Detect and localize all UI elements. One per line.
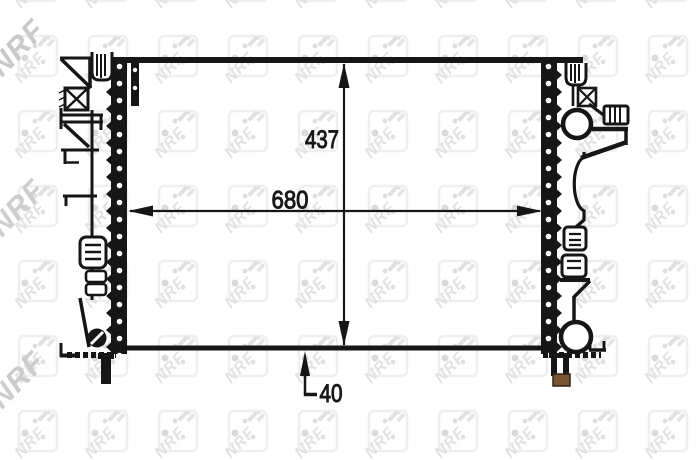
right-ribbed-connector-upper [564, 227, 586, 250]
left-filler-neck [92, 52, 112, 80]
right-inlet-port [563, 110, 591, 138]
radiator-technical-drawing: NRF NRF NRF NRF [0, 0, 700, 460]
seam-dot [133, 68, 137, 72]
left-ribbed-connector [80, 237, 106, 268]
lug [86, 284, 106, 295]
connector-body [562, 255, 586, 277]
height-dimension-label: 437 [305, 126, 339, 154]
depth-dimension-label: 40 [320, 380, 343, 408]
right-ribbed-connector-lower [562, 255, 586, 277]
left-core-seam [106, 58, 127, 354]
peg-cap [98, 353, 114, 359]
left-stacked-lugs [86, 271, 106, 295]
connector-body [564, 227, 586, 250]
right-mount-foot-rubber [553, 374, 570, 386]
seam-dot [133, 86, 137, 90]
right-outlet-port [561, 322, 591, 352]
left-top-rib [131, 58, 139, 106]
width-dimension-label: 680 [272, 187, 309, 215]
lug [86, 271, 106, 282]
foot-cap [549, 353, 571, 358]
peg-body [101, 359, 111, 384]
right-core-seam [541, 58, 562, 354]
